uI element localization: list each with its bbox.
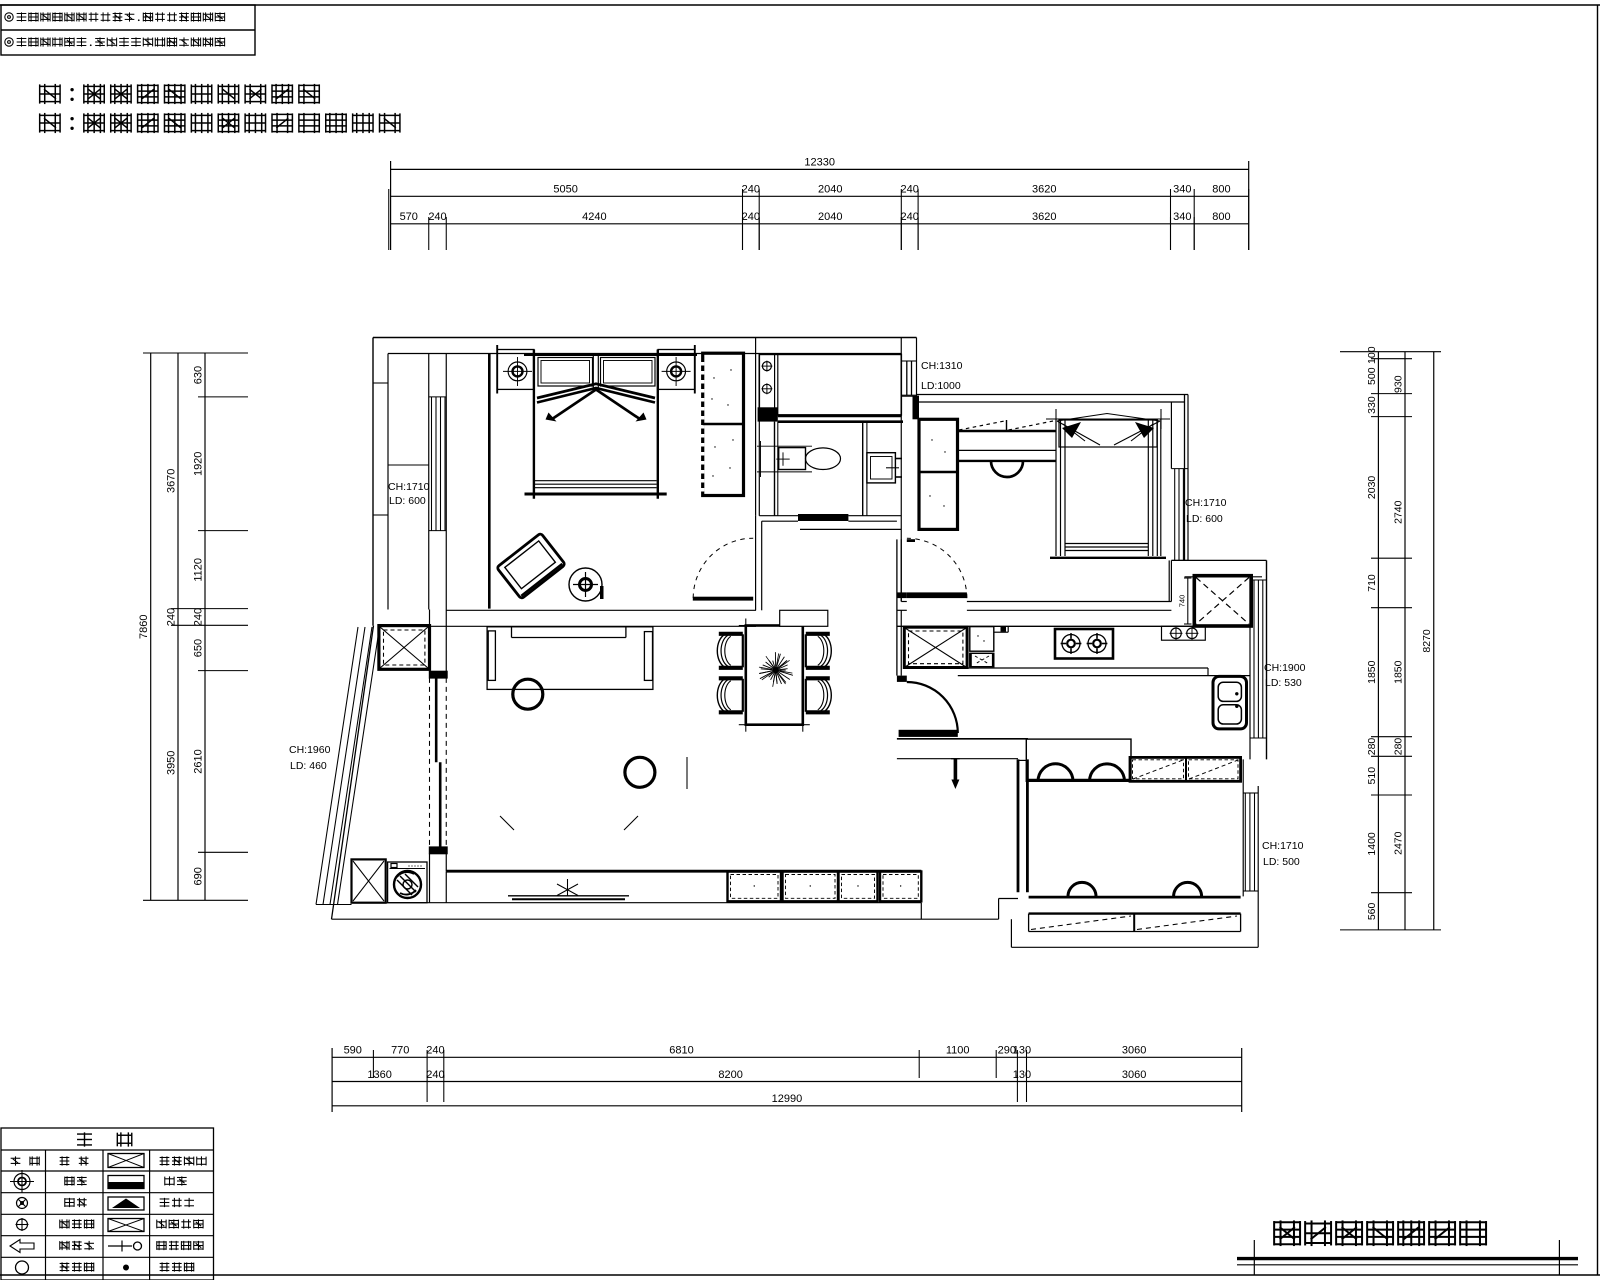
svg-text:630: 630 (193, 366, 205, 384)
svg-text:1120: 1120 (193, 558, 205, 582)
svg-text:240: 240 (166, 608, 178, 626)
svg-text:800: 800 (1212, 184, 1230, 196)
svg-text:280: 280 (1393, 738, 1405, 756)
svg-text:3620: 3620 (1032, 211, 1056, 223)
svg-text:570: 570 (400, 211, 418, 223)
svg-text:LD: 600: LD: 600 (389, 495, 426, 507)
svg-text:3670: 3670 (166, 469, 178, 493)
svg-text:CH:1900: CH:1900 (1264, 662, 1306, 674)
svg-text:130: 130 (1013, 1045, 1031, 1057)
svg-text:4240: 4240 (582, 211, 606, 223)
svg-text:CH:1710: CH:1710 (388, 481, 430, 493)
svg-text:240: 240 (426, 1045, 444, 1057)
svg-text:12330: 12330 (804, 157, 835, 169)
svg-text:2470: 2470 (1393, 831, 1405, 855)
svg-text:1920: 1920 (193, 452, 205, 476)
svg-text:710: 710 (1366, 574, 1378, 592)
svg-text:340: 340 (1173, 211, 1191, 223)
svg-text:510: 510 (1366, 767, 1378, 785)
svg-text:330: 330 (1366, 396, 1378, 414)
svg-text:LD: 460: LD: 460 (290, 760, 327, 772)
svg-text:2610: 2610 (193, 749, 205, 773)
svg-text:130: 130 (1013, 1069, 1031, 1081)
svg-text:5050: 5050 (553, 184, 577, 196)
svg-text:340: 340 (1173, 184, 1191, 196)
svg-text:3950: 3950 (166, 751, 178, 775)
svg-text:500: 500 (1366, 367, 1378, 385)
svg-text:CH:1960: CH:1960 (289, 744, 331, 756)
svg-text:1100: 1100 (946, 1045, 970, 1057)
svg-text:LD: 530: LD: 530 (1265, 677, 1302, 689)
svg-text:590: 590 (344, 1045, 362, 1057)
svg-text:240: 240 (901, 211, 919, 223)
svg-text:930: 930 (1393, 375, 1405, 393)
svg-text:LD:1000: LD:1000 (921, 380, 961, 392)
svg-text:650: 650 (193, 639, 205, 657)
svg-text:LD: 600: LD: 600 (1186, 513, 1223, 525)
svg-text:1850: 1850 (1366, 660, 1378, 684)
svg-text:240: 240 (742, 211, 760, 223)
svg-text:2740: 2740 (1393, 500, 1405, 524)
svg-text:CH:1710: CH:1710 (1262, 840, 1304, 852)
svg-text:CH:1710: CH:1710 (1185, 497, 1227, 509)
svg-text:280: 280 (1366, 738, 1378, 756)
svg-text:690: 690 (193, 867, 205, 885)
svg-text:3620: 3620 (1032, 184, 1056, 196)
svg-text:240: 240 (193, 608, 205, 626)
svg-text:740: 740 (1178, 595, 1187, 608)
svg-text:12990: 12990 (772, 1093, 803, 1105)
svg-text:2030: 2030 (1366, 476, 1378, 500)
svg-text:240: 240 (742, 184, 760, 196)
svg-text:3060: 3060 (1122, 1069, 1146, 1081)
svg-text:240: 240 (428, 211, 446, 223)
svg-text:100: 100 (1366, 346, 1378, 364)
svg-text:1360: 1360 (367, 1069, 391, 1081)
svg-text:240: 240 (426, 1069, 444, 1081)
svg-text:6810: 6810 (669, 1045, 693, 1057)
svg-text:770: 770 (391, 1045, 409, 1057)
svg-text:7860: 7860 (138, 614, 150, 638)
svg-text:560: 560 (1366, 902, 1378, 920)
svg-text:3060: 3060 (1122, 1045, 1146, 1057)
svg-text:8270: 8270 (1421, 629, 1433, 653)
svg-text:1400: 1400 (1366, 832, 1378, 856)
svg-text:2040: 2040 (818, 211, 842, 223)
svg-text:8200: 8200 (718, 1069, 742, 1081)
svg-text:2040: 2040 (818, 184, 842, 196)
svg-text:LD: 500: LD: 500 (1263, 856, 1300, 868)
svg-text:1850: 1850 (1393, 660, 1405, 684)
svg-text:CH:1310: CH:1310 (921, 360, 963, 372)
svg-text:240: 240 (901, 184, 919, 196)
svg-text:800: 800 (1212, 211, 1230, 223)
